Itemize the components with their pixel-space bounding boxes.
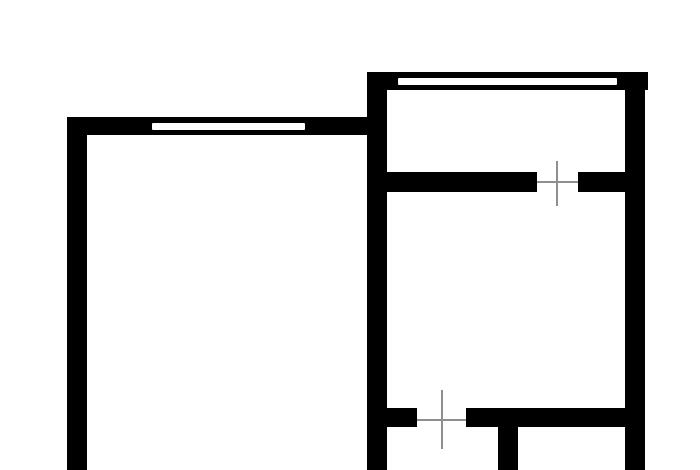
upper-door-marker-horizontal-line	[537, 181, 578, 183]
right-room-window	[398, 78, 617, 85]
left-room-left-wall	[67, 117, 87, 470]
right-unit-right-wall	[625, 72, 645, 470]
lower-door-marker-horizontal-line	[417, 419, 466, 421]
bottom-partition-wall	[498, 427, 518, 470]
upper-divider-right-segment	[578, 172, 625, 192]
upper-divider-left-segment	[387, 172, 537, 192]
lower-divider-left-stub	[387, 408, 417, 427]
upper-door-marker-vertical-line	[556, 161, 558, 206]
left-room-window	[152, 123, 305, 130]
right-unit-left-wall	[367, 72, 387, 470]
lower-divider-right-segment	[466, 408, 625, 427]
floor-plan-canvas	[0, 0, 700, 470]
